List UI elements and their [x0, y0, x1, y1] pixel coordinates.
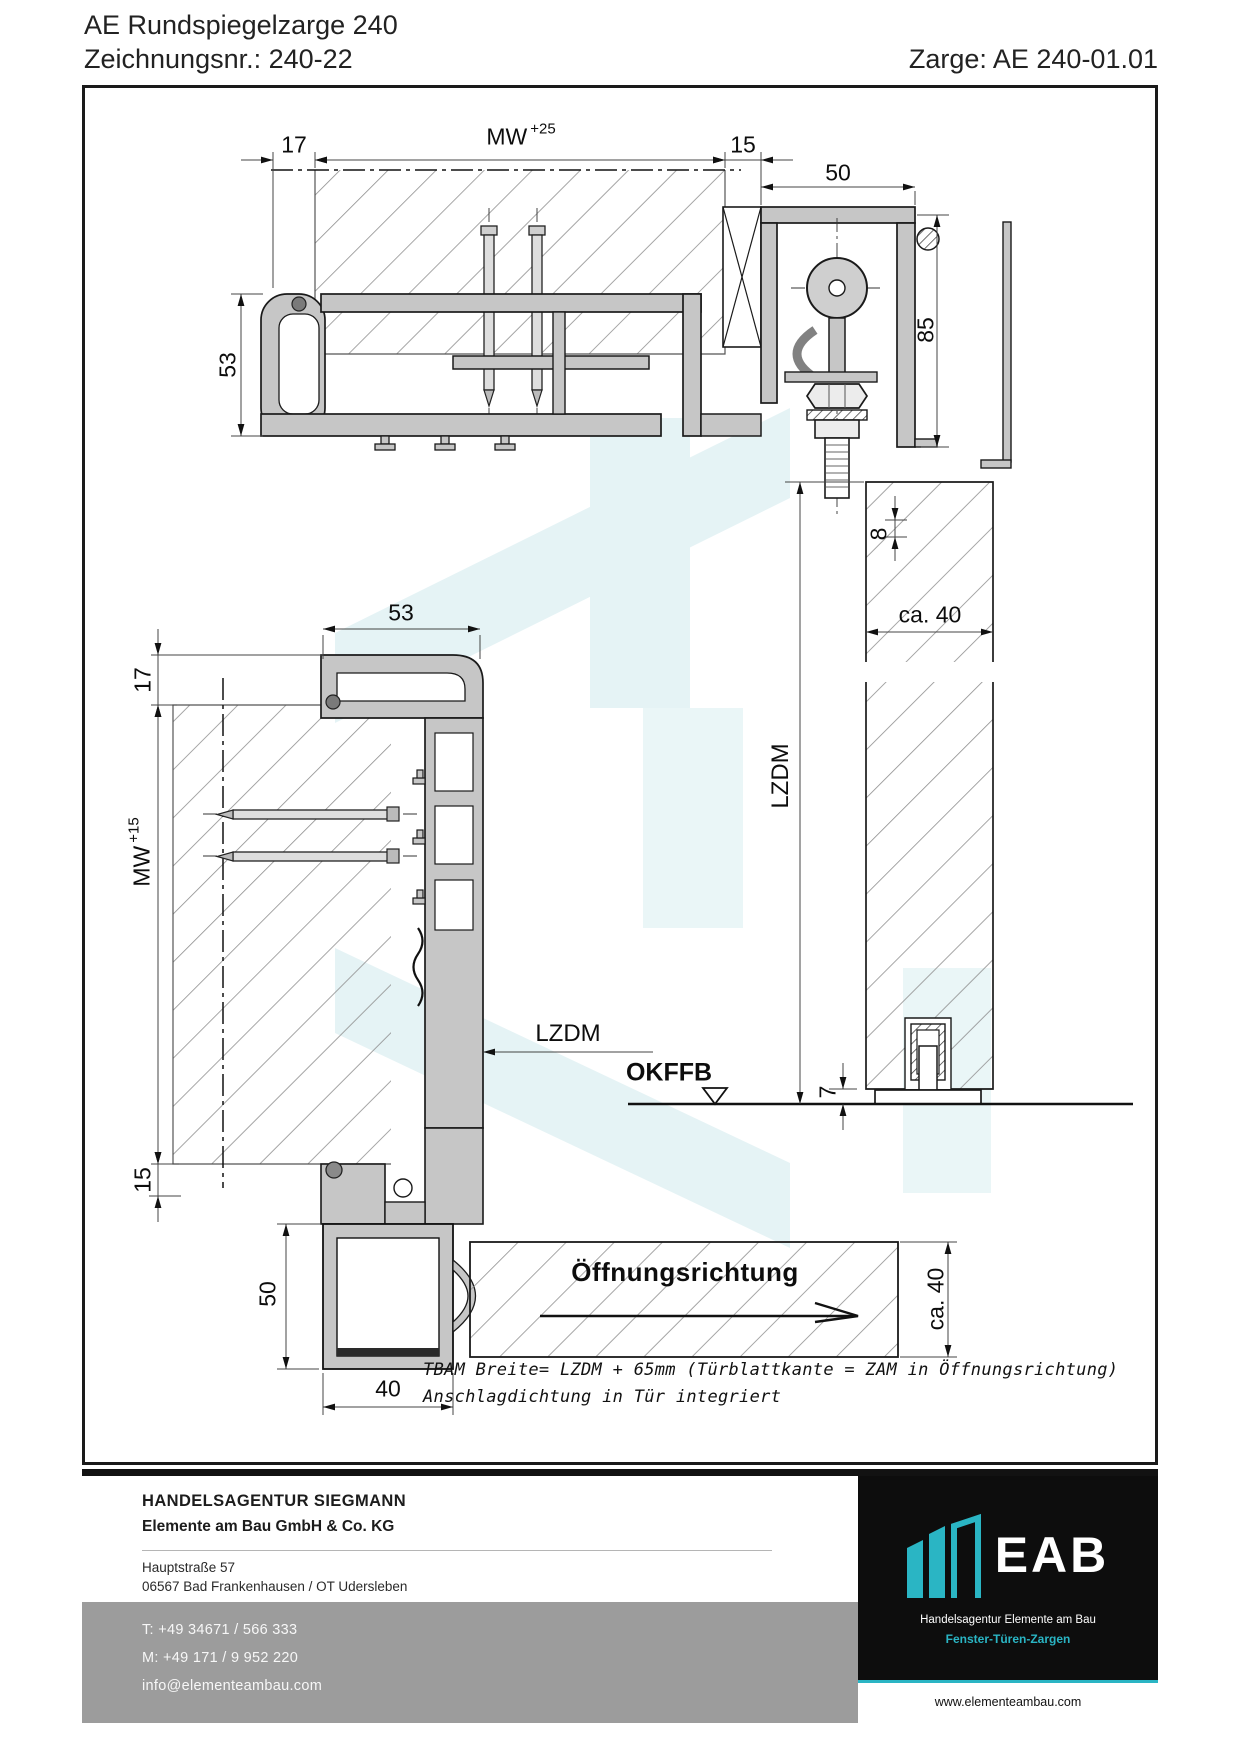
frame-number: Zarge: AE 240-01.01 [909, 44, 1158, 75]
dim-door-top-gap: 8 [868, 528, 891, 541]
dim-head-overlap-right: 15 [730, 134, 756, 157]
address-city: 06567 Bad Frankenhausen / OT Udersleben [142, 1579, 407, 1594]
phone-m: M: +49 171 / 9 952 220 [142, 1650, 298, 1666]
drawing-sheet: AE Rundspiegelzarge 240 Zeichnungsnr.: 2… [0, 0, 1240, 1754]
dim-door-thickness-head: ca. 40 [899, 604, 962, 627]
dim-clear-height: LZDM [769, 743, 793, 808]
dim-head-wall-width: MW+25 [486, 124, 555, 149]
footer-divider [142, 1550, 772, 1551]
contact-band: T: +49 34671 / 566 333 M: +49 171 / 9 95… [82, 1602, 858, 1723]
dim-box-width: 40 [375, 1378, 401, 1401]
eab-logo-box: EAB Handelsagentur Elemente am Bau Fenst… [858, 1476, 1158, 1723]
drawing-number: Zeichnungsnr.: 240-22 [84, 44, 353, 75]
dim-floor-gap: 7 [817, 1086, 840, 1099]
dim-door-thickness-plan: ca. 40 [925, 1268, 948, 1331]
dim-track-height: 85 [915, 317, 938, 343]
jamb-section [173, 655, 483, 1369]
page-title: AE Rundspiegelzarge 240 [84, 10, 398, 41]
drawing-frame: 17 MW+25 15 50 85 53 8 ca. 40 LZDM 53 17… [82, 85, 1158, 1465]
dim-jamb-depth: 50 [257, 1281, 280, 1307]
dim-head-depth: 53 [217, 352, 240, 378]
logo-tagline: Fenster-Türen-Zargen [858, 1632, 1158, 1646]
company-name: HANDELSAGENTUR SIEGMANN [142, 1492, 406, 1511]
hanger-bolt-rod [825, 438, 849, 498]
floor-level-label: OKFFB [626, 1061, 712, 1086]
dim-jamb-overlap-bottom: 15 [132, 1167, 155, 1193]
footer: HANDELSAGENTUR SIEGMANN Elemente am Bau … [82, 1469, 1158, 1723]
sliding-door-leaf [866, 482, 993, 1104]
logo-acronym: EAB [995, 1530, 1110, 1580]
dim-clear-width: LZDM [535, 1022, 600, 1046]
dim-track-width: 50 [825, 162, 851, 185]
technical-drawing [85, 88, 1155, 1462]
email[interactable]: info@elementeambau.com [142, 1678, 322, 1694]
logo-company-name: Handelsagentur Elemente am Bau [858, 1614, 1158, 1626]
dim-jamb-wall-width: MW+15 [129, 817, 154, 886]
website-strip: www.elementeambau.com [858, 1680, 1158, 1726]
address-street: Hauptstraße 57 [142, 1560, 235, 1575]
eab-logo-icon [907, 1512, 981, 1598]
cover-profile [981, 222, 1011, 468]
dim-head-overlap-left: 17 [281, 134, 307, 157]
note-seal: Anschlagdichtung in Tür integriert [423, 1387, 781, 1407]
insulation-block [723, 207, 761, 347]
opening-direction-label: Öffnungsrichtung [571, 1259, 799, 1285]
dim-jamb-overlap-top: 17 [132, 667, 155, 693]
jamb-box-profile [323, 1224, 476, 1369]
note-tbam-width: TBAM Breite= LZDM + 65mm (Türblattkante … [423, 1360, 1118, 1380]
dim-jamb-width: 53 [388, 602, 414, 625]
phone-t: T: +49 34671 / 566 333 [142, 1622, 297, 1638]
company-legal-name: Elemente am Bau GmbH & Co. KG [142, 1518, 394, 1536]
website-url[interactable]: www.elementeambau.com [858, 1695, 1158, 1709]
